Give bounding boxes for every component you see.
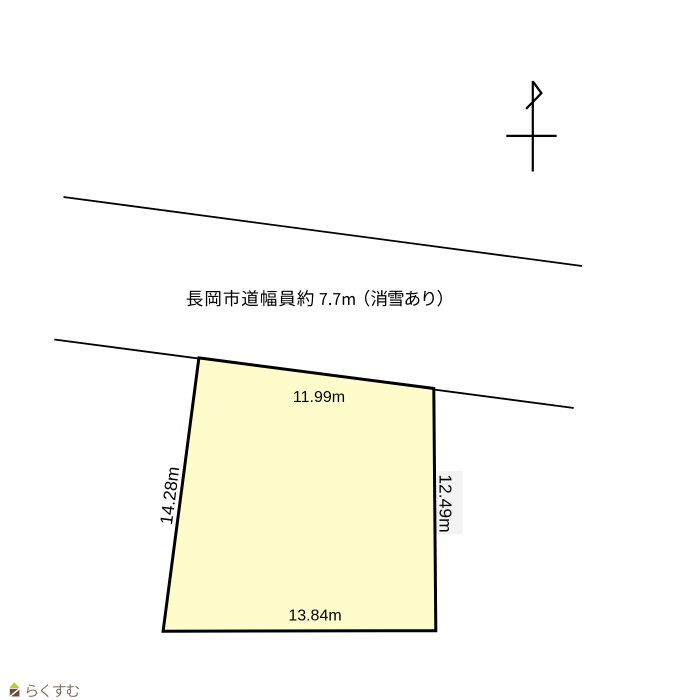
- svg-text:13.84m: 13.84m: [288, 608, 341, 625]
- svg-text:11.99m: 11.99m: [293, 389, 345, 406]
- svg-text:12.49m: 12.49m: [436, 474, 456, 532]
